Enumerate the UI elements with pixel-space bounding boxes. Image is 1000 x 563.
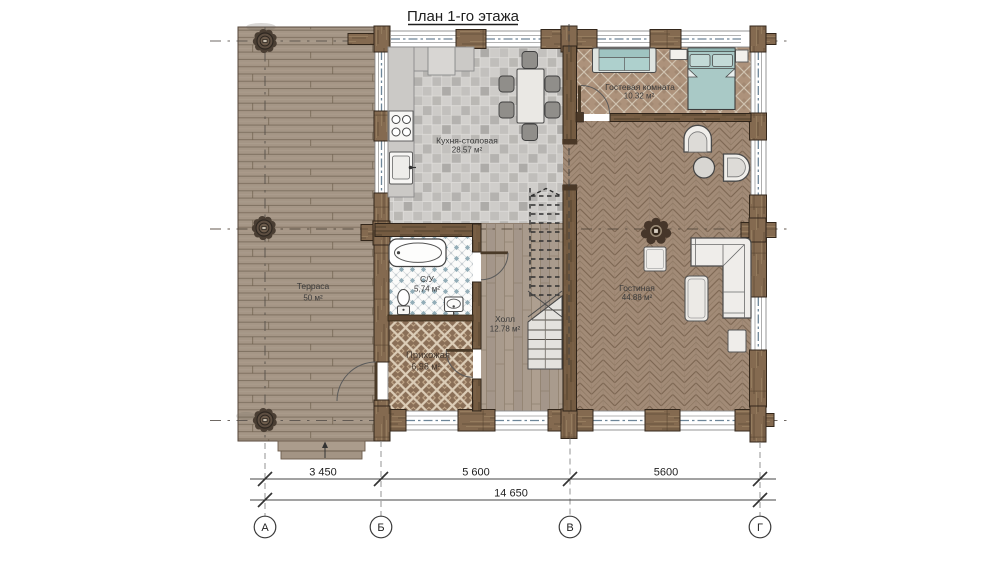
svg-text:Кухня-столовая: Кухня-столовая [436,136,498,146]
svg-text:В: В [566,522,573,534]
svg-text:Прихожая: Прихожая [406,350,450,361]
svg-text:28.57 м²: 28.57 м² [452,146,483,155]
svg-text:План 1-го этажа: План 1-го этажа [407,8,520,25]
svg-text:3 450: 3 450 [309,467,337,479]
svg-text:6,98 м²: 6,98 м² [411,362,440,372]
svg-text:44.88 м²: 44.88 м² [622,293,653,302]
svg-text:12.78 м²: 12.78 м² [490,325,521,334]
svg-text:Г: Г [757,522,763,534]
svg-text:5 600: 5 600 [462,467,490,479]
svg-text:Б: Б [377,522,384,534]
svg-text:14 650: 14 650 [494,488,528,500]
svg-text:Холл: Холл [495,314,515,324]
svg-text:5600: 5600 [654,467,678,479]
svg-text:С/У: С/У [420,274,435,284]
svg-text:5,74 м²: 5,74 м² [414,285,440,294]
svg-text:50 м²: 50 м² [303,294,323,303]
svg-text:Гостевая комната: Гостевая комната [605,82,675,92]
svg-text:Терраса: Терраса [297,281,330,291]
svg-text:Гостиная: Гостиная [619,283,655,293]
svg-text:А: А [261,522,269,534]
svg-text:10.32 м²: 10.32 м² [624,92,655,101]
